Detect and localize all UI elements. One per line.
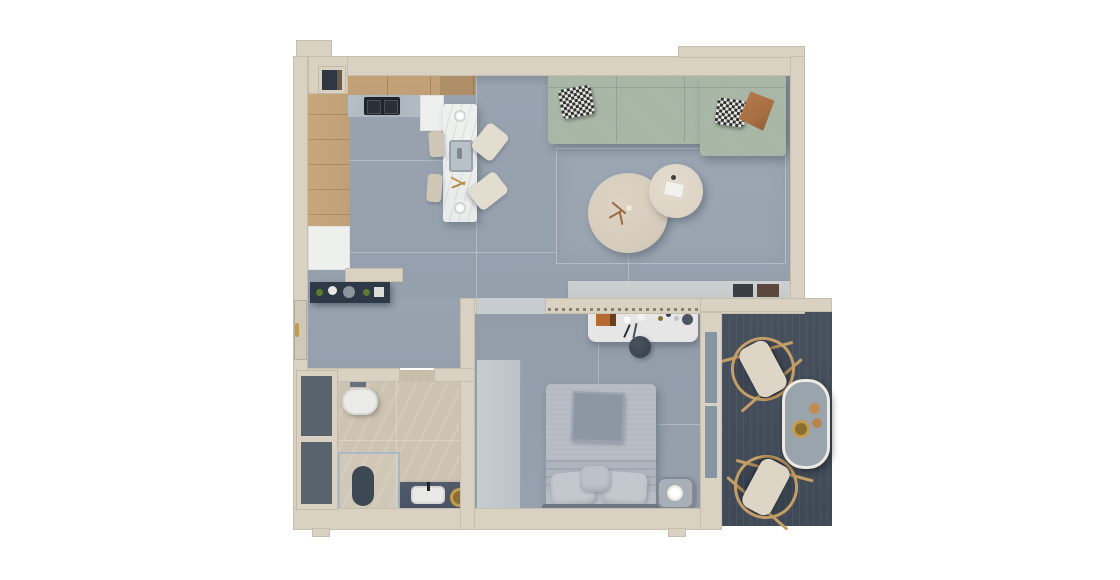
kitchen-end-cabinet [420,95,444,131]
cooktop [364,97,400,115]
island-chair [428,131,445,158]
desk-stool [629,336,651,358]
decor-bowl [682,314,693,325]
glass-door-mullion [703,403,719,406]
bed-pillow-small [580,466,610,492]
cosmetic-jar [658,316,663,321]
plant [316,289,323,296]
wall-tab-bottom [668,528,686,537]
small-decor [671,175,676,180]
burner [367,100,381,114]
shaft-panel [301,442,332,504]
island-chair [426,174,443,203]
wall-tab-bottom [312,528,330,537]
wall-niche-frame [318,66,346,94]
door-handle [295,323,299,337]
table-lamp [667,485,683,501]
pen [623,324,631,338]
wall-top [293,56,805,76]
floor-plan-canvas [0,0,1120,580]
gold-cup [792,420,810,438]
dish [622,315,632,325]
burner [384,100,398,114]
bathroom-door-threshold [400,370,434,382]
wall-niche-window [322,70,342,90]
wardrobe [477,360,522,508]
bed-folded-blanket [571,391,625,443]
box-decor [374,287,384,297]
kitchen-side-cabinet [308,226,350,270]
tile-joint [658,424,700,425]
sofa-seam [616,76,617,142]
shaft-panel [301,376,332,436]
vanity-faucet [427,482,430,491]
pendant-light [454,202,466,214]
checkered-pillow [558,84,596,119]
book [663,180,686,199]
coffee-table-small [649,164,703,218]
pendant-light [454,110,466,122]
cosmetic-jar [674,316,679,321]
sofa-seam [684,76,685,142]
shower-mat [352,466,374,506]
sliding-glass-door [703,330,719,480]
wall-bottom [293,508,710,530]
vase [328,286,337,295]
wall-hall-stub [345,268,403,282]
vase [624,203,634,213]
bowl [343,286,355,298]
service-shaft [296,370,338,510]
wooden-bowl [812,418,822,428]
nightstand [657,477,694,509]
bedroom-door-threshold [477,298,545,314]
curtain-track [548,308,698,311]
toilet [342,388,378,415]
kitchen-island [443,104,477,222]
hallway-floor [308,298,460,368]
kitchen-wood-floor [308,90,350,226]
wall-balcony-top [700,298,832,312]
floor-plan [0,0,1120,580]
wall-right [790,56,805,314]
wall-bathroom-top-b [434,368,475,382]
console-artwork [757,284,779,297]
faucet [457,148,462,159]
tile-joint [338,440,472,441]
hallway-sideboard [310,282,390,303]
balcony-table [782,379,830,469]
wall-bedroom-left [460,298,475,530]
entry-door [294,300,307,360]
wall-top-right-notch [678,46,805,58]
console-artwork [733,284,753,297]
dish [637,313,645,321]
accessory-box [596,314,616,326]
wooden-bowl [809,403,820,414]
plant [363,289,370,296]
